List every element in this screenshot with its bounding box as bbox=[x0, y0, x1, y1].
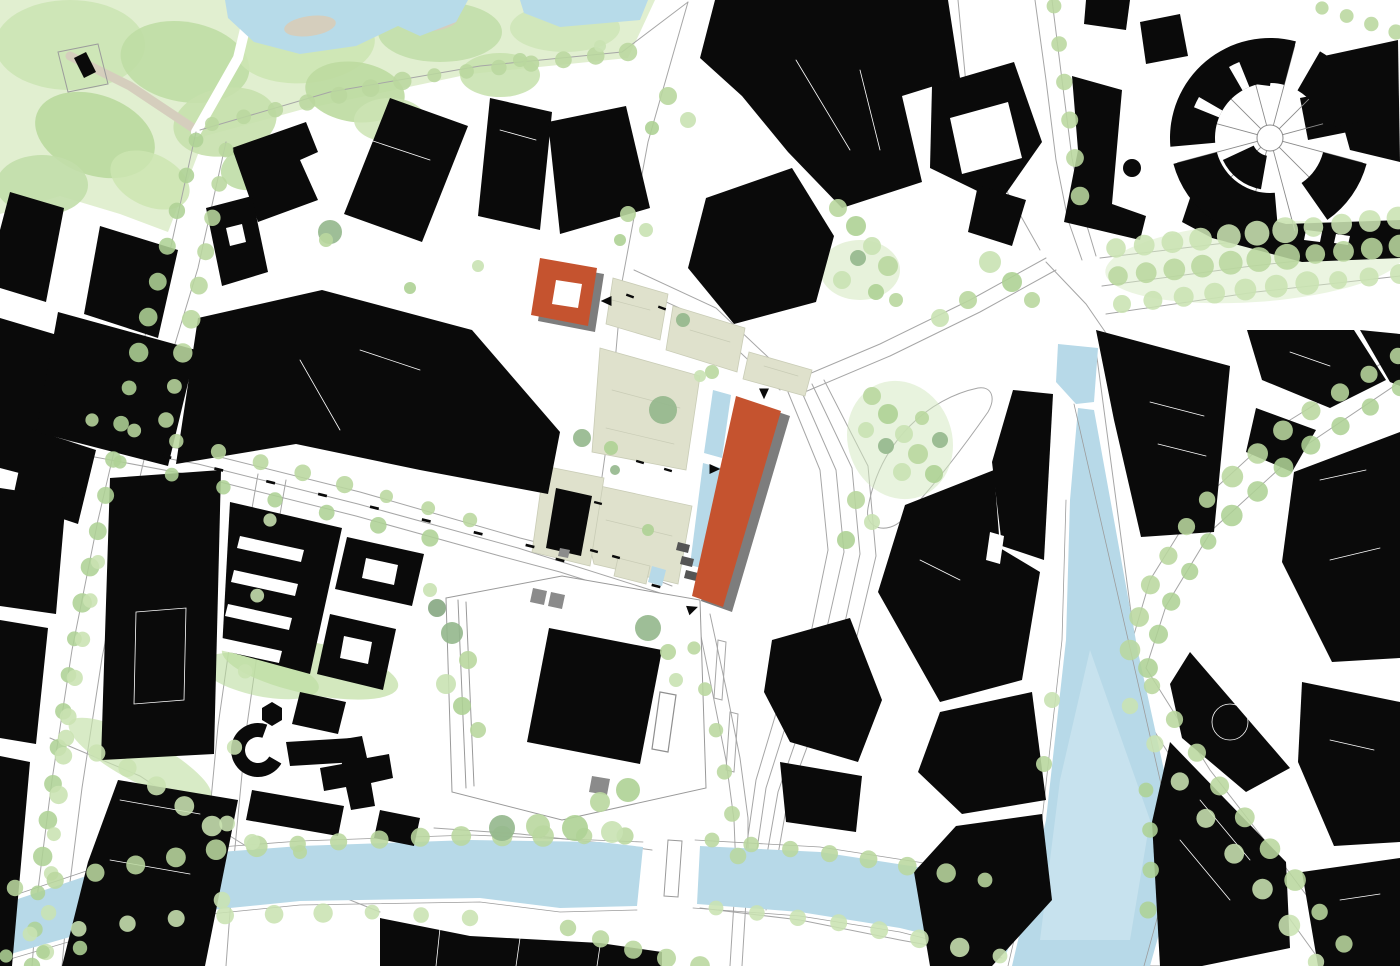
tree bbox=[1360, 268, 1379, 287]
tree bbox=[1274, 244, 1300, 270]
tree bbox=[1219, 251, 1243, 275]
tree bbox=[294, 465, 311, 482]
site-plan-canvas bbox=[0, 0, 1400, 966]
tree bbox=[159, 238, 176, 255]
tree bbox=[624, 941, 642, 959]
tree bbox=[1235, 807, 1255, 827]
tree bbox=[1002, 272, 1022, 292]
building bbox=[262, 702, 282, 726]
tree bbox=[0, 949, 13, 962]
tree bbox=[165, 468, 179, 482]
tree bbox=[1272, 217, 1298, 243]
tree bbox=[436, 674, 456, 694]
tree bbox=[950, 938, 969, 957]
tree bbox=[86, 864, 104, 882]
tree bbox=[639, 223, 653, 237]
layer-circus bbox=[1170, 38, 1368, 238]
tree bbox=[174, 796, 194, 816]
tree bbox=[709, 901, 724, 916]
tree bbox=[293, 845, 307, 859]
tree bbox=[158, 412, 174, 428]
tree bbox=[85, 413, 98, 426]
tree bbox=[932, 432, 948, 448]
tree bbox=[1047, 0, 1062, 13]
tree bbox=[1279, 915, 1301, 937]
tree bbox=[1051, 36, 1067, 52]
tree bbox=[1044, 692, 1060, 708]
road-edge bbox=[1046, 262, 1108, 336]
tree bbox=[459, 64, 474, 79]
tree bbox=[393, 72, 411, 90]
tree bbox=[147, 776, 166, 795]
tree bbox=[206, 839, 227, 860]
tree bbox=[451, 826, 471, 846]
tree bbox=[370, 517, 387, 534]
tree bbox=[931, 309, 949, 327]
tree bbox=[878, 438, 894, 454]
tree bbox=[1142, 822, 1158, 838]
tree bbox=[649, 396, 677, 424]
tree bbox=[937, 863, 956, 882]
tree bbox=[169, 434, 183, 448]
tree bbox=[263, 513, 276, 526]
tree bbox=[1178, 518, 1195, 535]
tree bbox=[676, 313, 690, 327]
tree bbox=[560, 920, 576, 936]
tree bbox=[404, 282, 416, 294]
tree bbox=[1245, 221, 1270, 246]
tree bbox=[331, 87, 348, 104]
tree bbox=[319, 233, 333, 247]
tree bbox=[55, 747, 73, 765]
tree bbox=[1171, 772, 1189, 790]
tree bbox=[1335, 935, 1352, 952]
tree bbox=[1362, 398, 1379, 415]
tree bbox=[313, 903, 332, 922]
tree bbox=[211, 444, 226, 459]
tree bbox=[1235, 279, 1257, 301]
canal-head bbox=[1056, 344, 1098, 404]
tree bbox=[1162, 231, 1184, 253]
tree bbox=[489, 815, 515, 841]
tree bbox=[616, 778, 640, 802]
tree bbox=[993, 949, 1008, 964]
tree bbox=[1329, 271, 1347, 289]
tree bbox=[698, 682, 712, 696]
tree bbox=[179, 168, 195, 184]
tree bbox=[730, 848, 747, 865]
tree bbox=[1200, 533, 1216, 549]
tree bbox=[1140, 902, 1157, 919]
tree bbox=[847, 491, 865, 509]
tree bbox=[690, 956, 710, 966]
tree bbox=[863, 387, 881, 405]
road-median bbox=[726, 712, 738, 772]
tree bbox=[850, 250, 866, 266]
tree bbox=[1306, 244, 1326, 264]
tree bbox=[73, 941, 87, 955]
tree bbox=[41, 905, 56, 920]
entrance-marker bbox=[601, 296, 612, 306]
tree bbox=[33, 847, 52, 866]
tree bbox=[910, 930, 929, 949]
tree bbox=[642, 524, 654, 536]
building bbox=[246, 790, 344, 836]
building bbox=[101, 470, 221, 760]
tree bbox=[211, 176, 227, 192]
tree bbox=[1331, 383, 1349, 401]
tree bbox=[1189, 228, 1212, 251]
tree bbox=[362, 79, 380, 97]
tree bbox=[265, 905, 284, 924]
tree bbox=[898, 857, 917, 876]
tree bbox=[1181, 563, 1198, 580]
building bbox=[992, 390, 1053, 560]
tree bbox=[1056, 74, 1072, 90]
tree bbox=[526, 814, 550, 838]
tree bbox=[244, 834, 260, 850]
tree bbox=[453, 697, 471, 715]
tree bbox=[870, 921, 888, 939]
crosswalk bbox=[530, 588, 547, 605]
tree bbox=[743, 837, 759, 853]
tree bbox=[139, 308, 158, 327]
tree bbox=[330, 833, 347, 850]
tree bbox=[592, 930, 609, 947]
tree bbox=[30, 886, 45, 901]
lane-dashes bbox=[664, 468, 672, 473]
tree bbox=[24, 958, 40, 966]
tree bbox=[202, 816, 223, 837]
tree bbox=[129, 343, 148, 362]
tree bbox=[694, 370, 706, 382]
tree bbox=[604, 441, 618, 455]
tree bbox=[878, 404, 898, 424]
tree bbox=[1199, 492, 1215, 508]
tree bbox=[227, 740, 242, 755]
tree bbox=[67, 670, 83, 686]
tree bbox=[1163, 259, 1185, 281]
tree bbox=[169, 203, 185, 219]
tree bbox=[472, 260, 484, 272]
tree bbox=[167, 379, 182, 394]
building bbox=[176, 290, 560, 494]
tree bbox=[149, 273, 167, 291]
dev-block bbox=[743, 352, 812, 396]
tree bbox=[7, 880, 23, 896]
tree bbox=[829, 199, 847, 217]
building-tower bbox=[1123, 159, 1141, 177]
tree bbox=[1024, 292, 1040, 308]
tree bbox=[878, 256, 898, 276]
dev-block bbox=[606, 278, 668, 340]
tree bbox=[1146, 735, 1163, 752]
building bbox=[1298, 682, 1400, 846]
tree bbox=[1284, 869, 1306, 891]
tree bbox=[428, 599, 446, 617]
tree bbox=[47, 827, 61, 841]
tree bbox=[470, 722, 486, 738]
tree bbox=[216, 480, 230, 494]
tree bbox=[893, 463, 911, 481]
tree bbox=[119, 916, 135, 932]
tree bbox=[459, 651, 477, 669]
tree bbox=[601, 821, 623, 843]
tree bbox=[1224, 844, 1244, 864]
tree bbox=[846, 216, 866, 236]
tree bbox=[669, 673, 683, 687]
tree bbox=[1129, 607, 1149, 627]
tree bbox=[1108, 266, 1128, 286]
tree bbox=[594, 40, 606, 52]
tree bbox=[555, 51, 572, 68]
building bbox=[0, 488, 66, 614]
building bbox=[688, 168, 834, 324]
tree bbox=[724, 806, 740, 822]
tree bbox=[336, 476, 353, 493]
tree bbox=[1196, 809, 1215, 828]
tree bbox=[182, 310, 201, 329]
tree bbox=[657, 949, 676, 966]
tree bbox=[166, 848, 186, 868]
tree bbox=[868, 284, 884, 300]
tree bbox=[97, 487, 114, 504]
tree bbox=[1136, 262, 1157, 283]
circus-pavilion bbox=[1254, 70, 1272, 86]
tree bbox=[645, 121, 659, 135]
tree bbox=[635, 615, 661, 641]
tree bbox=[1301, 436, 1320, 455]
tree bbox=[370, 831, 388, 849]
tree bbox=[421, 529, 438, 546]
tree bbox=[1340, 9, 1354, 23]
tree bbox=[127, 424, 141, 438]
tree bbox=[23, 927, 38, 942]
tree bbox=[1274, 458, 1294, 478]
tree bbox=[680, 112, 696, 128]
tree bbox=[978, 873, 993, 888]
building bbox=[780, 762, 862, 832]
bridge-median bbox=[664, 840, 682, 897]
tree bbox=[1360, 366, 1377, 383]
tree bbox=[1166, 711, 1183, 728]
tree bbox=[1141, 575, 1160, 594]
tree bbox=[1143, 291, 1162, 310]
tree bbox=[513, 53, 527, 67]
tree bbox=[1260, 838, 1281, 859]
tree bbox=[427, 68, 441, 82]
tree bbox=[1066, 149, 1084, 167]
tree bbox=[590, 792, 610, 812]
tree bbox=[1204, 283, 1225, 304]
tree bbox=[1246, 247, 1271, 272]
tree bbox=[268, 102, 283, 117]
road-median bbox=[714, 640, 726, 700]
tree bbox=[36, 945, 50, 959]
tree bbox=[1361, 238, 1383, 260]
tree bbox=[1191, 255, 1214, 278]
lane-dashes bbox=[473, 531, 482, 536]
tree bbox=[219, 143, 234, 158]
tree bbox=[619, 43, 637, 61]
tree bbox=[253, 454, 269, 470]
tree bbox=[705, 365, 719, 379]
plaza-center bbox=[1257, 125, 1283, 151]
tree bbox=[573, 429, 591, 447]
tree bbox=[830, 914, 847, 931]
tree bbox=[214, 892, 231, 909]
building bbox=[1140, 14, 1188, 64]
building bbox=[700, 0, 960, 208]
tree bbox=[562, 815, 588, 841]
tree bbox=[236, 110, 251, 125]
tree bbox=[1120, 640, 1141, 661]
tree bbox=[821, 845, 838, 862]
site-plan-map bbox=[0, 0, 1400, 966]
tree bbox=[915, 411, 929, 425]
tree bbox=[39, 811, 58, 830]
tree bbox=[908, 444, 928, 464]
lane-dashes bbox=[266, 480, 275, 485]
tree bbox=[423, 583, 437, 597]
tree bbox=[709, 723, 723, 737]
tree bbox=[1265, 275, 1288, 298]
tree bbox=[411, 828, 430, 847]
tree bbox=[1144, 678, 1160, 694]
tree bbox=[687, 641, 700, 654]
tree bbox=[88, 744, 105, 761]
tree bbox=[889, 293, 903, 307]
tree bbox=[71, 921, 87, 937]
tree bbox=[58, 730, 74, 746]
tree bbox=[863, 237, 881, 255]
tree bbox=[1122, 698, 1138, 714]
tree bbox=[168, 910, 185, 927]
building bbox=[478, 98, 552, 230]
tree bbox=[47, 872, 64, 889]
tree bbox=[113, 455, 126, 468]
tree bbox=[380, 490, 393, 503]
tree bbox=[1304, 217, 1324, 237]
building bbox=[0, 620, 48, 744]
tree bbox=[205, 117, 219, 131]
tree bbox=[1359, 210, 1381, 232]
tree bbox=[749, 905, 765, 921]
tree bbox=[1331, 214, 1352, 235]
tree bbox=[717, 764, 732, 779]
tree bbox=[1252, 879, 1273, 900]
tree bbox=[705, 833, 720, 848]
tree bbox=[91, 555, 105, 569]
tree bbox=[1061, 112, 1078, 129]
tree bbox=[1217, 224, 1241, 248]
tree bbox=[979, 251, 1001, 273]
stadium-hall bbox=[527, 628, 662, 764]
tree bbox=[1159, 547, 1177, 565]
tree bbox=[365, 905, 380, 920]
entrance-marker bbox=[759, 389, 769, 400]
tree bbox=[1138, 658, 1158, 678]
tree bbox=[441, 622, 463, 644]
tree bbox=[267, 492, 282, 507]
tree bbox=[1106, 238, 1126, 258]
tree bbox=[1315, 1, 1328, 14]
tree bbox=[660, 644, 676, 660]
tree bbox=[122, 381, 137, 396]
tree bbox=[1247, 481, 1268, 502]
tree bbox=[1295, 271, 1319, 295]
tree bbox=[895, 425, 913, 443]
lane-dashes bbox=[370, 505, 379, 510]
tree bbox=[1139, 783, 1154, 798]
tree bbox=[1188, 744, 1206, 762]
tree bbox=[1333, 241, 1354, 262]
tree bbox=[959, 291, 977, 309]
tree bbox=[864, 514, 880, 530]
tree bbox=[1174, 287, 1194, 307]
circus-building bbox=[1302, 152, 1367, 220]
tree bbox=[1036, 756, 1052, 772]
tree bbox=[1134, 235, 1155, 256]
tree bbox=[620, 206, 636, 222]
tree bbox=[860, 850, 878, 868]
tree bbox=[833, 271, 851, 289]
tree bbox=[659, 87, 677, 105]
tree bbox=[610, 465, 620, 475]
tree bbox=[83, 593, 98, 608]
tree bbox=[1210, 777, 1229, 796]
tree bbox=[250, 589, 264, 603]
building bbox=[918, 692, 1046, 814]
building bbox=[0, 192, 64, 302]
tree bbox=[1221, 505, 1243, 527]
tree bbox=[1331, 417, 1349, 435]
tree bbox=[216, 907, 234, 925]
tree bbox=[1388, 24, 1400, 39]
tree bbox=[462, 910, 478, 926]
tree bbox=[1273, 421, 1293, 441]
tree bbox=[126, 856, 145, 875]
tree bbox=[1302, 401, 1321, 420]
tree bbox=[197, 243, 214, 260]
tree bbox=[1113, 295, 1131, 313]
building bbox=[1282, 432, 1400, 662]
tree bbox=[319, 505, 335, 521]
tree bbox=[858, 422, 874, 438]
tree bbox=[1143, 862, 1159, 878]
tree bbox=[189, 133, 204, 148]
tree bbox=[1222, 466, 1244, 488]
tree bbox=[782, 841, 798, 857]
tree bbox=[204, 210, 220, 226]
crosswalk bbox=[548, 592, 565, 609]
tree bbox=[1311, 904, 1327, 920]
tree bbox=[60, 708, 77, 725]
tree bbox=[491, 60, 506, 75]
tree bbox=[925, 465, 943, 483]
tree bbox=[75, 632, 90, 647]
tree bbox=[118, 759, 136, 777]
tree bbox=[49, 786, 67, 804]
proposal-courtyard bbox=[552, 280, 582, 308]
tree bbox=[299, 94, 315, 110]
tree bbox=[238, 664, 252, 678]
tree bbox=[1364, 17, 1378, 31]
tree bbox=[790, 910, 806, 926]
tree bbox=[1162, 593, 1180, 611]
tree bbox=[190, 277, 208, 295]
tree bbox=[113, 416, 129, 432]
